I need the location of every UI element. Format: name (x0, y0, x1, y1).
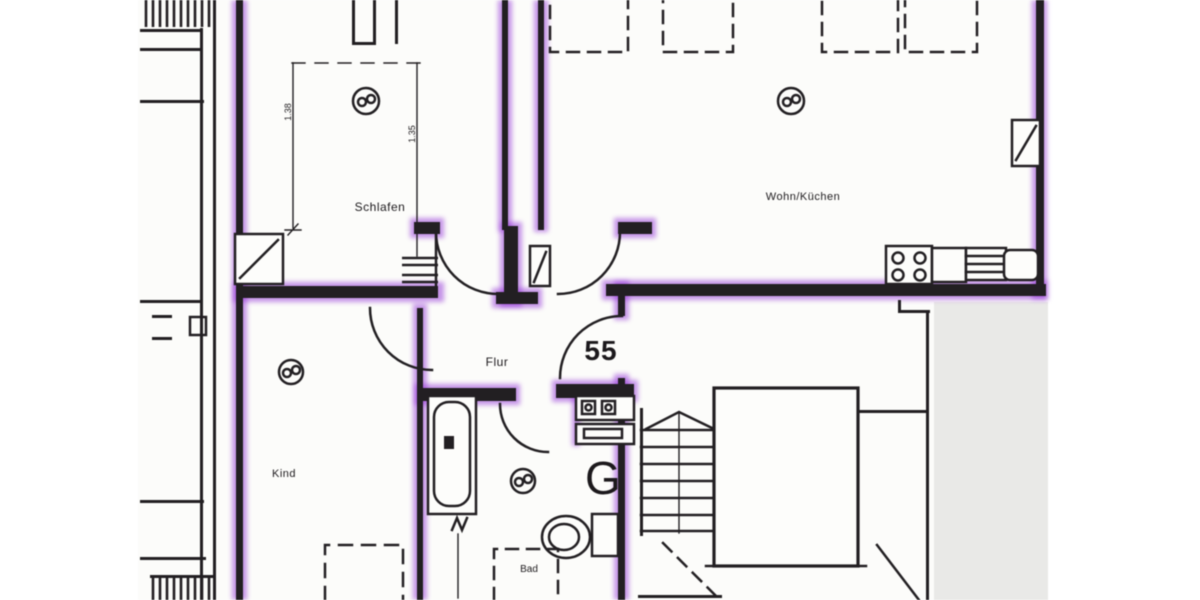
wall-schlafen-bottom (236, 286, 438, 298)
chimney-flue-box-wohnkueche (1012, 120, 1040, 166)
dimension-text-right: 1.35 (407, 125, 417, 143)
gas-boiler-symbol: G (585, 452, 621, 504)
dimension-text-left: 1.38 (283, 103, 293, 121)
bathtub (428, 396, 476, 514)
elevator-shaft (714, 388, 858, 566)
floor-plan-scan: 1.38 1.35 (0, 0, 1200, 600)
washbasin-unit (576, 396, 634, 444)
kitchen-counter (886, 246, 1038, 284)
apartment-number: 55 (584, 335, 617, 366)
room-label-bad: Bad (520, 564, 538, 575)
counter-segment (932, 248, 966, 282)
stairwell-right-wall (926, 310, 929, 600)
wall-kind-right (417, 308, 423, 600)
room-label-schlafen: Schlafen (355, 200, 406, 214)
wall-center-left (502, 0, 508, 230)
room-label-kind: Kind (272, 468, 296, 480)
blank-gray-area (934, 302, 1048, 600)
dish-drainer (966, 248, 1006, 280)
room-label-flur: Flur (486, 355, 509, 369)
chimney-flue-box-schlafen (235, 234, 283, 284)
stove-4-burner (886, 246, 932, 284)
kitchen-sink (1004, 250, 1038, 280)
door-leaf (530, 246, 550, 286)
wall-center-right (538, 0, 544, 230)
wall-wohnkueche-bottom (606, 284, 1046, 296)
floor-plan-drawing: 1.38 1.35 (0, 0, 1200, 600)
wall-left-outer (236, 0, 243, 600)
room-label-wohnkueche: Wohn/Küchen (766, 191, 840, 203)
toilet (542, 514, 618, 558)
